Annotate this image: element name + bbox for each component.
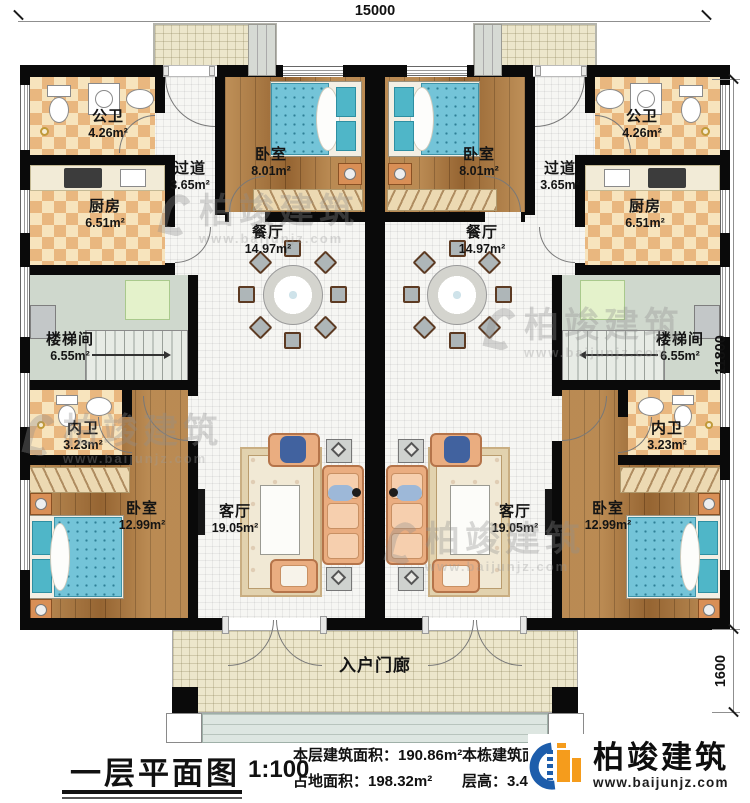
window (720, 85, 730, 150)
nightstand-knob (35, 604, 47, 616)
room-label-neiwei: 内卫 3.23m² (43, 421, 123, 452)
wall-segment (30, 155, 165, 165)
wash-basin (126, 89, 154, 109)
toilet-tank (679, 85, 703, 97)
terrace-window-right (474, 24, 502, 76)
kitchen-sink (120, 169, 146, 187)
wall-segment (720, 427, 730, 480)
bed-pillow (336, 87, 356, 117)
brand-logo-icon (530, 736, 588, 796)
window (407, 66, 467, 76)
wall-segment (322, 618, 365, 630)
wall-segment (122, 390, 132, 417)
room-label-neiwei: 内卫 3.23m² (627, 421, 707, 452)
window (20, 373, 30, 427)
room-label-canting: 餐厅 14.97m² (440, 225, 524, 256)
wall-segment (720, 150, 730, 190)
wall-segment (552, 275, 562, 380)
floor-drain-icon (40, 127, 49, 136)
toilet-bowl (681, 97, 701, 123)
wall-segment (30, 380, 198, 390)
window (283, 66, 343, 76)
dining-chair (330, 286, 347, 303)
window (20, 480, 30, 570)
person-head (389, 488, 398, 497)
dimension-tick (701, 10, 712, 21)
bed-pillow (698, 521, 718, 555)
door-jamb (581, 66, 587, 76)
wall-segment (20, 65, 163, 77)
room-label-canting: 餐厅 14.97m² (226, 225, 310, 256)
toilet-tank (56, 395, 78, 405)
dining-chair (403, 286, 420, 303)
room-label-keting: 客厅 19.05m² (193, 504, 277, 535)
stat-floor-area: 本层建筑面积：190.86m² (293, 742, 462, 769)
room-label-porch: 入户门廊 (300, 656, 450, 675)
stair-direction-arrow (164, 351, 171, 359)
wall-segment (618, 455, 720, 465)
brand-name: 柏竣建筑 (593, 742, 729, 773)
washing-machine-drum (95, 90, 113, 108)
toilet-tank (672, 395, 694, 405)
person-sitting-figure (444, 436, 470, 463)
wall-segment (521, 212, 525, 222)
washing-machine-drum (637, 90, 655, 108)
wall-segment (525, 77, 535, 215)
dining-chair (449, 332, 466, 349)
stat-site-area: 占地面积：198.32m² (293, 768, 432, 795)
armchair-cushion (280, 565, 308, 587)
person-sitting-figure (280, 436, 306, 463)
room-label-guodao: 过道 3.65m² (150, 161, 230, 192)
window (720, 190, 730, 233)
wall-segment (552, 390, 562, 396)
room-label-gongwei: 公卫 4.26m² (602, 109, 682, 140)
wardrobe (620, 467, 722, 493)
nightstand-knob (703, 498, 715, 510)
toilet-tank (47, 85, 71, 97)
nightstand-knob (394, 168, 406, 180)
kitchen-sink (604, 169, 630, 187)
bed-pillow (698, 559, 718, 593)
sofa-cushion (391, 533, 423, 559)
dining-chair (495, 286, 512, 303)
armchair-cushion (442, 565, 470, 587)
wash-basin (86, 397, 112, 416)
room-label-woshi-top: 卧室 8.01m² (439, 147, 519, 178)
dining-chair (284, 332, 301, 349)
pass-through-counter (125, 280, 170, 320)
wall-segment (188, 275, 198, 380)
bed-pillow (336, 121, 356, 151)
wall-segment (20, 618, 228, 630)
porch-column (172, 687, 198, 713)
person-lying-figure (328, 485, 354, 501)
room-label-woshi-main: 卧室 12.99m² (566, 501, 650, 532)
wall-segment (720, 233, 730, 267)
room-label-loutijian: 楼梯间 6.55m² (638, 332, 722, 363)
brand-url: www.baijunjz.com (593, 775, 729, 790)
wash-basin (638, 397, 664, 416)
dimension-line-right (733, 80, 734, 712)
wall-segment (20, 150, 30, 190)
wall-segment (20, 233, 30, 267)
nightstand-knob (35, 498, 47, 510)
stove (64, 168, 102, 188)
nightstand-knob (703, 604, 715, 616)
room-label-woshi-main: 卧室 12.99m² (100, 501, 184, 532)
dimension-side-value: 11800 (713, 324, 729, 386)
wall-segment (580, 265, 720, 275)
dining-chair (238, 286, 255, 303)
toilet-bowl (49, 97, 69, 123)
stair-direction-arrow (579, 351, 586, 359)
dimension-top-value: 15000 (330, 3, 420, 19)
wall-segment (618, 390, 628, 417)
person-head (352, 488, 361, 497)
nightstand-knob (344, 168, 356, 180)
unit-right: 公卫 4.26m² 过道 3.65m² 卧室 8.01m² 厨房 6.51m² … (375, 65, 730, 630)
room-label-chufang: 厨房 6.51m² (605, 199, 685, 230)
dining-table (263, 265, 323, 325)
wall-segment (585, 77, 595, 113)
title-underline (62, 797, 242, 799)
plan-title: 一层平面图 (70, 748, 240, 793)
party-wall (365, 65, 375, 630)
door-opening (533, 65, 587, 77)
room-label-guodao: 过道 3.65m² (520, 161, 600, 192)
room-label-chufang: 厨房 6.51m² (65, 199, 145, 230)
sofa-cushion (391, 503, 423, 529)
room-label-keting: 客厅 19.05m² (473, 504, 557, 535)
wall-segment (20, 427, 30, 480)
party-wall (375, 65, 385, 630)
wardrobe (253, 189, 363, 211)
window (20, 267, 30, 337)
dining-table (427, 265, 487, 325)
wall-segment (585, 155, 720, 165)
wall-segment (587, 65, 730, 77)
door-jamb (209, 66, 215, 76)
wall-segment (155, 77, 165, 113)
bed-pillow (32, 559, 52, 593)
wall-segment (215, 77, 225, 215)
wall-segment (20, 65, 30, 85)
pass-through-counter (580, 280, 625, 320)
wash-basin (596, 89, 624, 109)
wall-segment (225, 212, 229, 222)
dimension-porch-value: 1600 (713, 641, 729, 701)
bed-pillow (394, 87, 414, 117)
wall-segment (522, 618, 730, 630)
wall-segment (30, 265, 170, 275)
room-label-woshi-top: 卧室 8.01m² (231, 147, 311, 178)
person-lying-figure (396, 485, 422, 501)
wall-segment (385, 212, 485, 222)
dimension-tick (13, 10, 24, 21)
wall-segment (30, 455, 132, 465)
door-jamb (535, 66, 541, 76)
floor-drain-icon (701, 127, 710, 136)
bed-pillow (394, 121, 414, 151)
bed-sheet-fold (50, 523, 70, 591)
brand-logo: 柏竣建筑 www.baijunjz.com (528, 734, 733, 798)
porch-column (552, 687, 578, 713)
window (720, 480, 730, 570)
wardrobe (387, 189, 497, 211)
dimension-line-top (18, 21, 710, 22)
window (20, 190, 30, 233)
room-label-gongwei: 公卫 4.26m² (68, 109, 148, 140)
room-label-loutijian: 楼梯间 6.55m² (28, 332, 112, 363)
unit-left: 公卫 4.26m² 过道 3.65m² 卧室 8.01m² 厨房 6.51m² … (20, 65, 375, 630)
sofa-cushion (327, 503, 359, 529)
porch-steps (202, 713, 548, 743)
floor-plan-canvas: 15000 (0, 0, 750, 803)
wall-segment (188, 390, 198, 396)
wardrobe (28, 467, 130, 493)
door-jamb (163, 66, 169, 76)
stove (648, 168, 686, 188)
title-underline (62, 790, 242, 794)
terrace-window-left (248, 24, 276, 76)
window (20, 85, 30, 150)
wall-segment (265, 212, 365, 222)
wall-segment (552, 380, 720, 390)
sofa-cushion (327, 533, 359, 559)
bed-pillow (32, 521, 52, 555)
bed-sheet-fold (680, 523, 700, 591)
porch-column-base (166, 713, 202, 743)
